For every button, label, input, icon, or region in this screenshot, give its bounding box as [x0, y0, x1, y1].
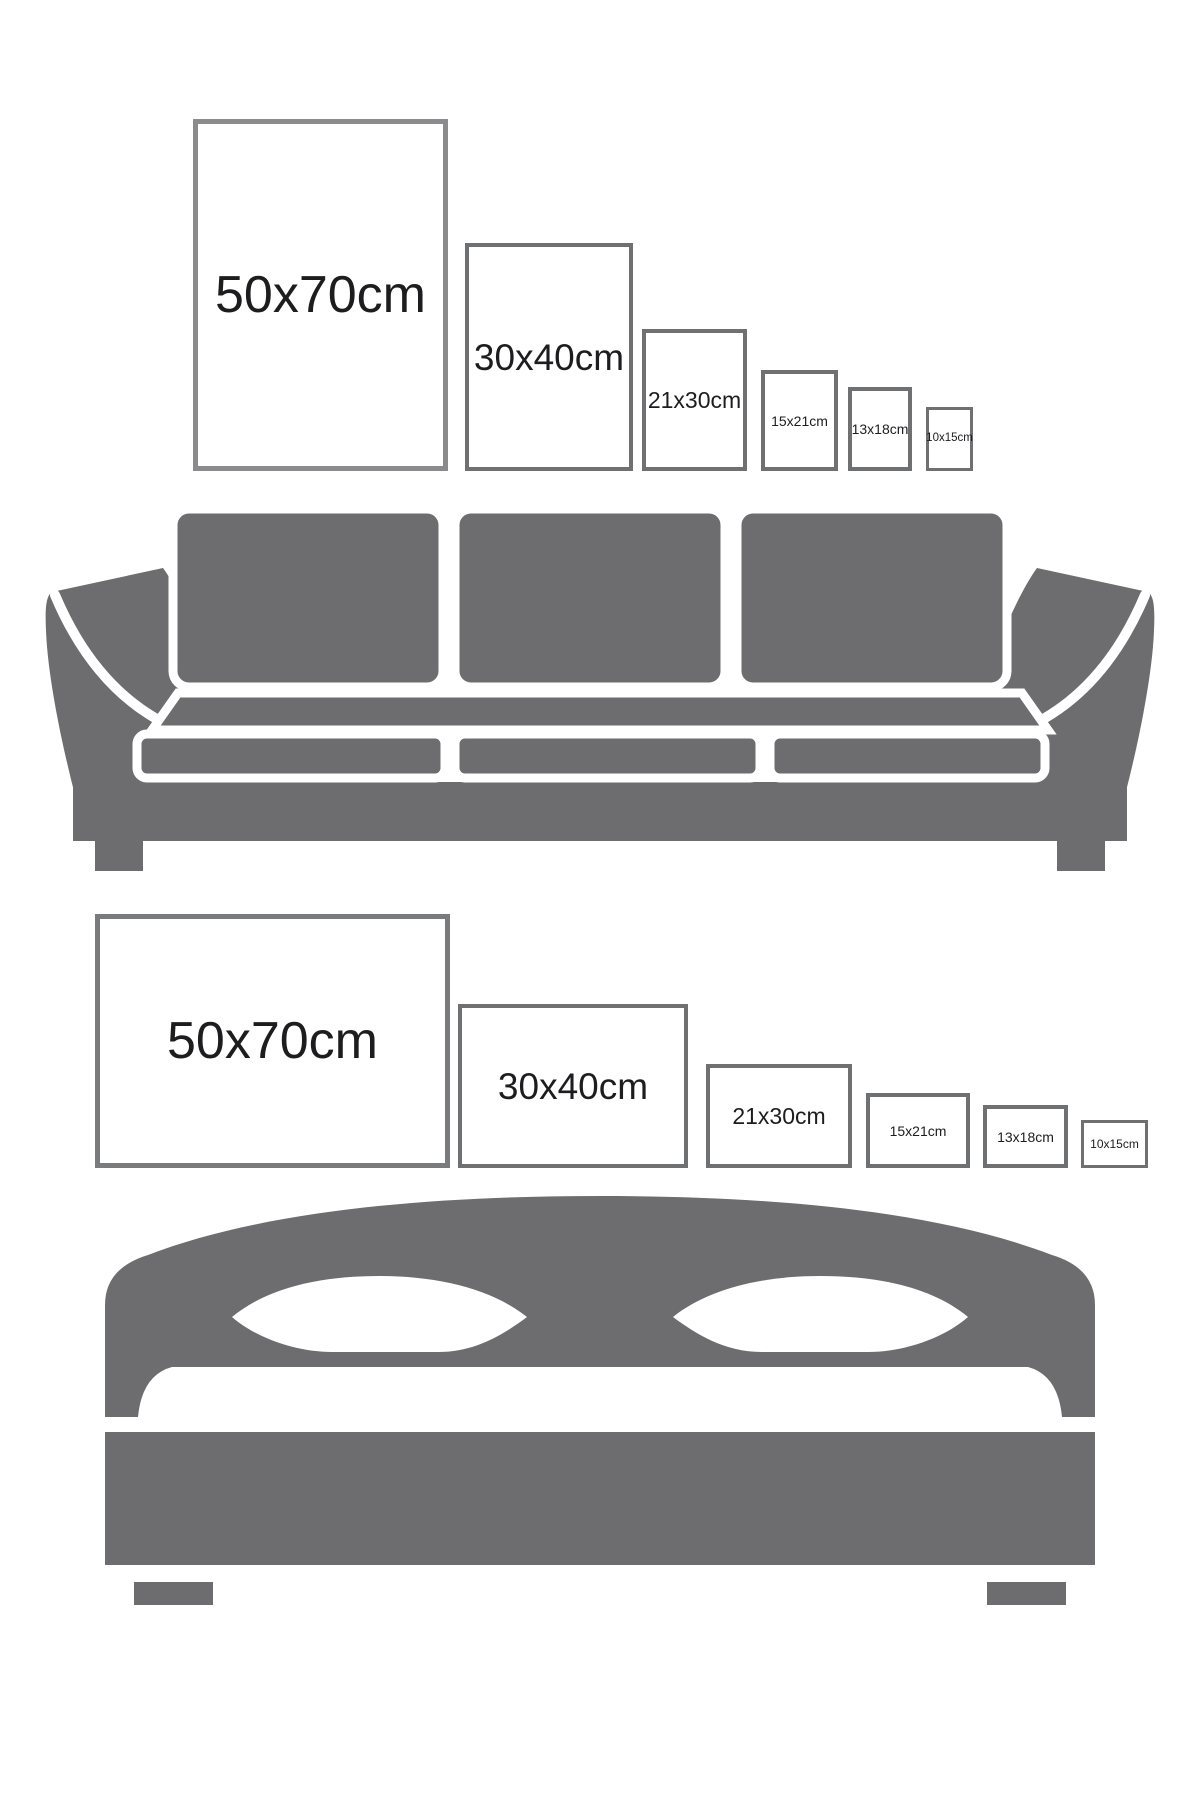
frame-size-label: 21x30cm — [732, 1105, 825, 1128]
frame-size-label: 13x18cm — [852, 422, 909, 436]
frame-15x21-landscape: 15x21cm — [866, 1093, 970, 1168]
frame-30x40-landscape: 30x40cm — [458, 1004, 688, 1168]
frame-size-label: 30x40cm — [498, 1068, 648, 1105]
frame-10x15-portrait: 10x15cm — [926, 407, 973, 471]
frame-21x30-portrait: 21x30cm — [642, 329, 747, 471]
frame-50x70-portrait: 50x70cm — [193, 119, 448, 471]
poster-size-guide: 50x70cm 30x40cm 21x30cm 15x21cm 13x18cm … — [0, 0, 1200, 1800]
frame-13x18-landscape: 13x18cm — [983, 1105, 1068, 1168]
frame-21x30-landscape: 21x30cm — [706, 1064, 852, 1168]
frame-size-label: 15x21cm — [771, 414, 828, 428]
frame-15x21-portrait: 15x21cm — [761, 370, 838, 471]
frame-size-label: 21x30cm — [648, 389, 741, 412]
frame-size-label: 13x18cm — [997, 1130, 1054, 1144]
frame-50x70-landscape: 50x70cm — [95, 914, 450, 1168]
bed-icon — [100, 1190, 1100, 1610]
frame-size-label: 50x70cm — [215, 269, 426, 321]
sofa-icon — [40, 500, 1160, 880]
frame-size-label: 15x21cm — [890, 1124, 947, 1138]
frame-13x18-portrait: 13x18cm — [848, 387, 912, 471]
frame-30x40-portrait: 30x40cm — [465, 243, 633, 471]
frame-size-label: 10x15cm — [926, 433, 973, 445]
frame-size-label: 30x40cm — [474, 339, 624, 376]
frame-10x15-landscape: 10x15cm — [1081, 1120, 1148, 1168]
frame-size-label: 50x70cm — [167, 1015, 378, 1067]
frame-size-label: 10x15cm — [1090, 1138, 1139, 1150]
